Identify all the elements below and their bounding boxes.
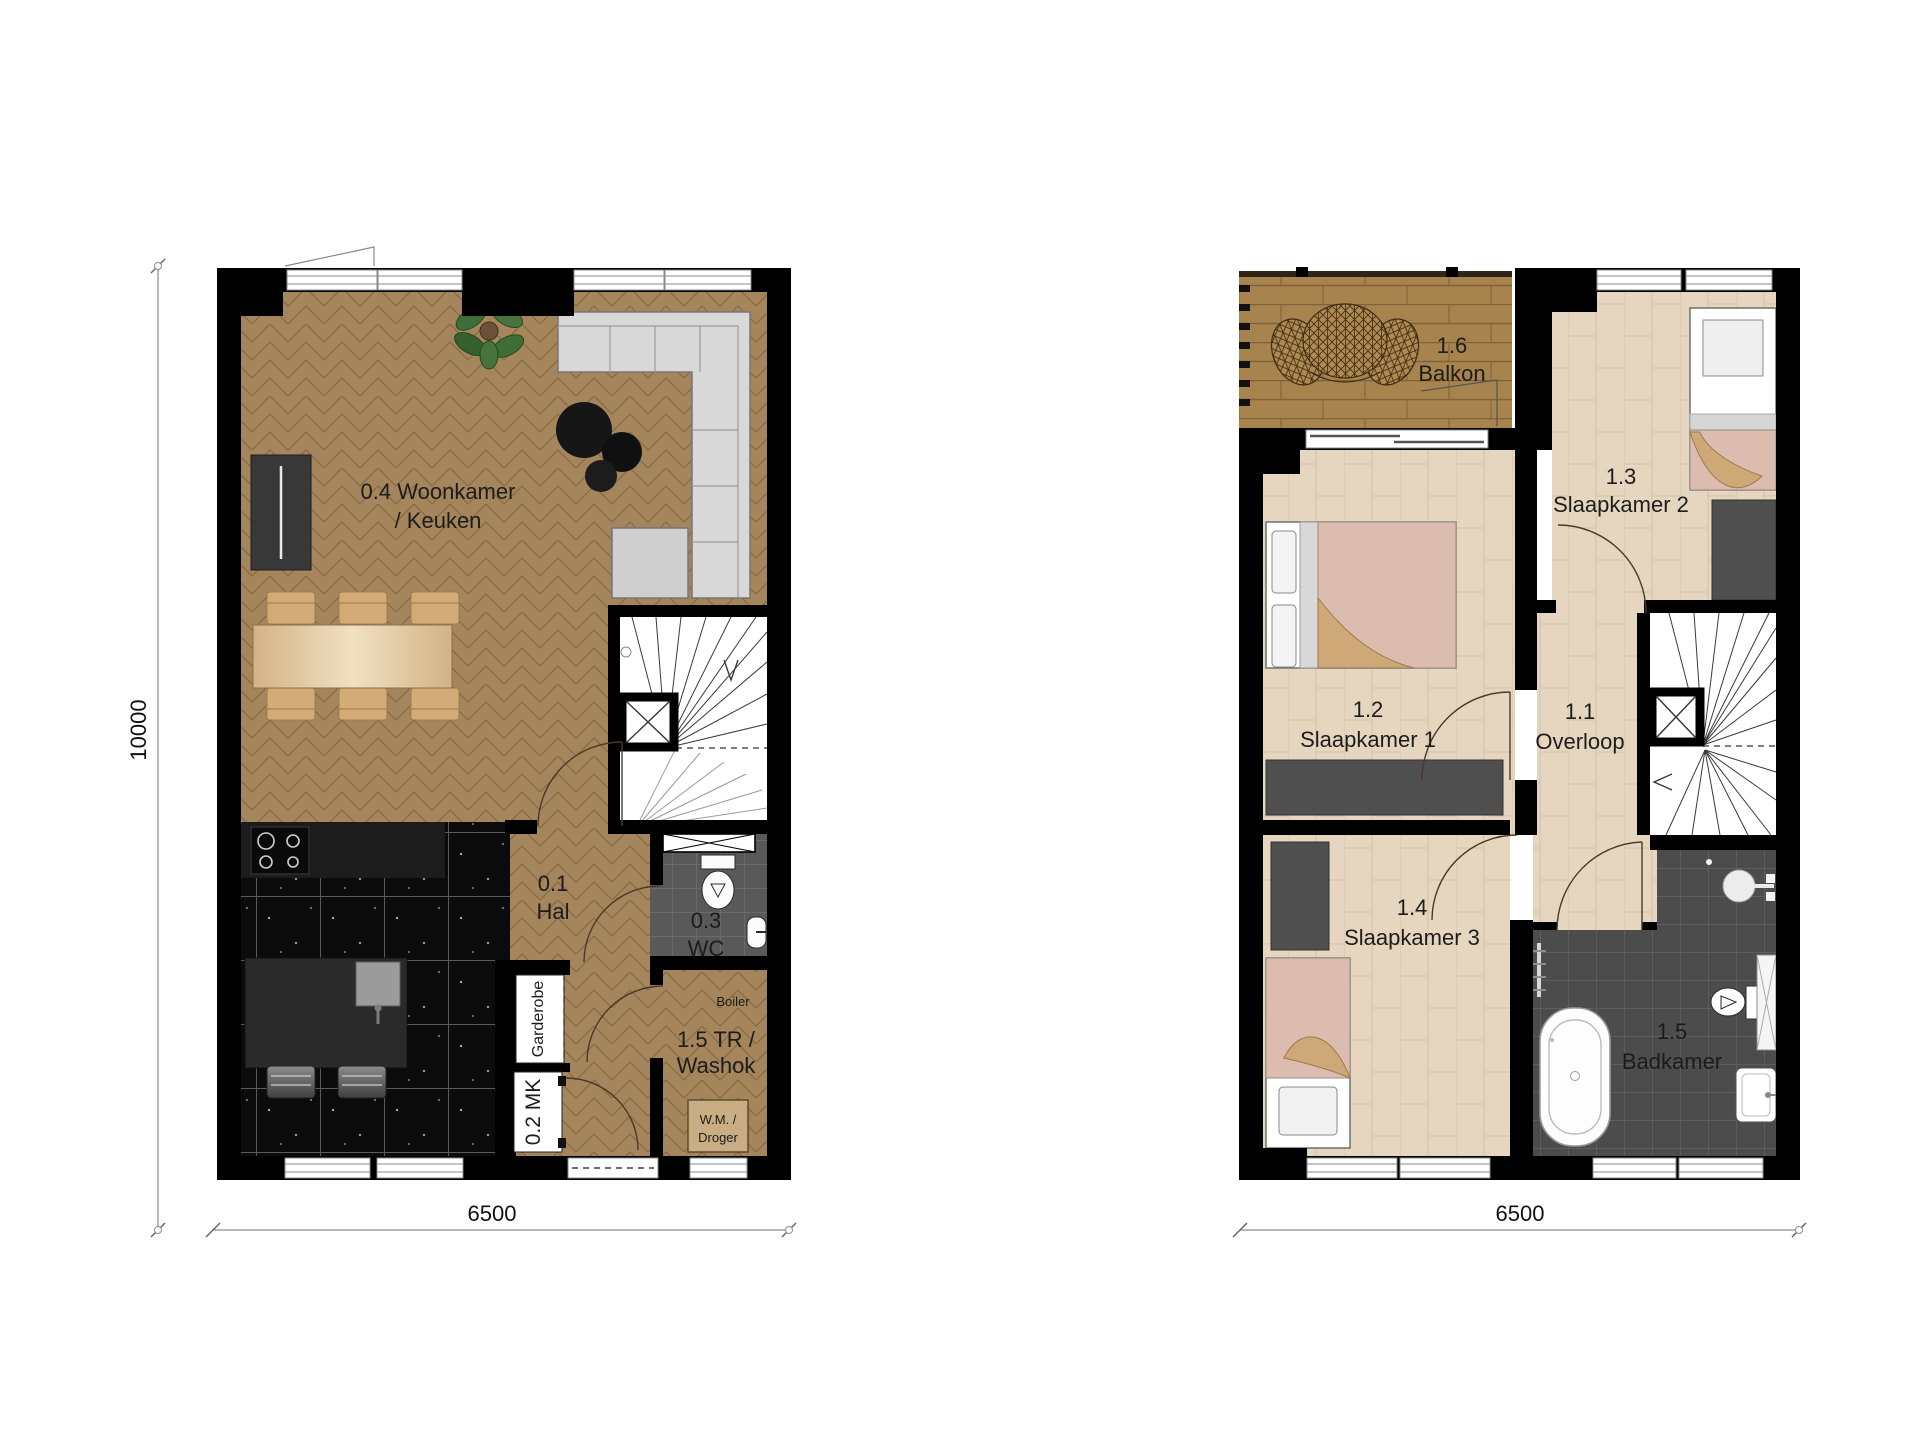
sliding-door <box>1306 430 1488 448</box>
shower-screen <box>1757 955 1776 1050</box>
hal-label: 0.1 <box>538 871 569 896</box>
kitchen-sink <box>356 962 400 1006</box>
wm-label2: Droger <box>698 1130 738 1145</box>
bedroom2-label: 1.3 <box>1606 464 1637 489</box>
toilet-ff <box>1711 986 1760 1019</box>
wardrobe-bedroom2 <box>1712 500 1776 600</box>
awning-window-symbol <box>285 247 374 266</box>
overloop-label2: Overloop <box>1535 729 1624 754</box>
balkon-label: 1.6 <box>1437 333 1468 358</box>
hand-basin <box>747 917 766 948</box>
wm-label: W.M. / <box>700 1112 737 1127</box>
toilet-gf <box>701 855 735 909</box>
dim-width-left: 6500 <box>468 1201 517 1226</box>
wc-label: 0.3 <box>691 908 722 933</box>
overloop-label: 1.1 <box>1565 699 1596 724</box>
bathtub <box>1540 1008 1610 1146</box>
washok-label: 1.5 TR / <box>677 1027 756 1052</box>
dining-table <box>253 625 452 688</box>
landing-floor-lower <box>1533 835 1657 930</box>
wardrobe-bedroom3 <box>1271 842 1329 950</box>
front-door <box>568 1158 658 1178</box>
bedroom1-label2: Slaapkamer 1 <box>1300 727 1436 752</box>
bed-single-bedroom2 <box>1690 308 1776 490</box>
dining-set <box>253 592 459 720</box>
garderobe-label: Garderobe <box>530 981 547 1058</box>
boiler-label: Boiler <box>716 994 750 1009</box>
badkamer-label: 1.5 <box>1657 1019 1688 1044</box>
badkamer-label2: Badkamer <box>1622 1049 1722 1074</box>
balkon-label2: Balkon <box>1418 361 1485 386</box>
bedroom2-label2: Slaapkamer 2 <box>1553 492 1689 517</box>
radiator <box>251 455 311 570</box>
landing-floor <box>1537 613 1650 835</box>
bedroom1-label: 1.2 <box>1353 697 1384 722</box>
bedroom3-label2: Slaapkamer 3 <box>1344 925 1480 950</box>
dim-width-right: 6500 <box>1496 1201 1545 1226</box>
dim-height-left: 10000 <box>126 699 151 760</box>
living-label: 0.4 Woonkamer <box>361 479 516 504</box>
washbasin <box>1736 1068 1776 1122</box>
living-label2: / Keuken <box>395 508 482 533</box>
cooktop <box>251 827 309 874</box>
bed-double <box>1266 522 1456 668</box>
first-floor-plan: 1.6 Balkon 1.3 Slaapkamer 2 1.2 Slaapkam… <box>1239 267 1800 1180</box>
bedroom3-label: 1.4 <box>1397 895 1428 920</box>
shower-area-floor <box>1657 850 1776 930</box>
sofa-ottoman <box>612 528 688 598</box>
washok-label2: Washok <box>677 1053 757 1078</box>
wardrobe-bedroom1 <box>1266 760 1503 815</box>
kitchen-island <box>245 958 407 1068</box>
ground-floor-plan: 0.4 Woonkamer / Keuken 0.1 Hal 0.3 WC Ga… <box>217 247 791 1180</box>
floorplan-canvas: 0.4 Woonkamer / Keuken 0.1 Hal 0.3 WC Ga… <box>0 0 1920 1440</box>
kitchen-counter <box>241 822 445 878</box>
bed-single-bedroom3 <box>1266 958 1350 1148</box>
shaft-ff <box>1652 692 1700 742</box>
shaft-gf <box>622 697 674 747</box>
hal-label2: Hal <box>536 899 569 924</box>
floorplan-page: { "ground_floor": { "living": {"line1": … <box>0 0 1920 1440</box>
meterkast-label: 0.2 MK <box>522 1079 545 1146</box>
wc-label2: WC <box>688 936 725 961</box>
